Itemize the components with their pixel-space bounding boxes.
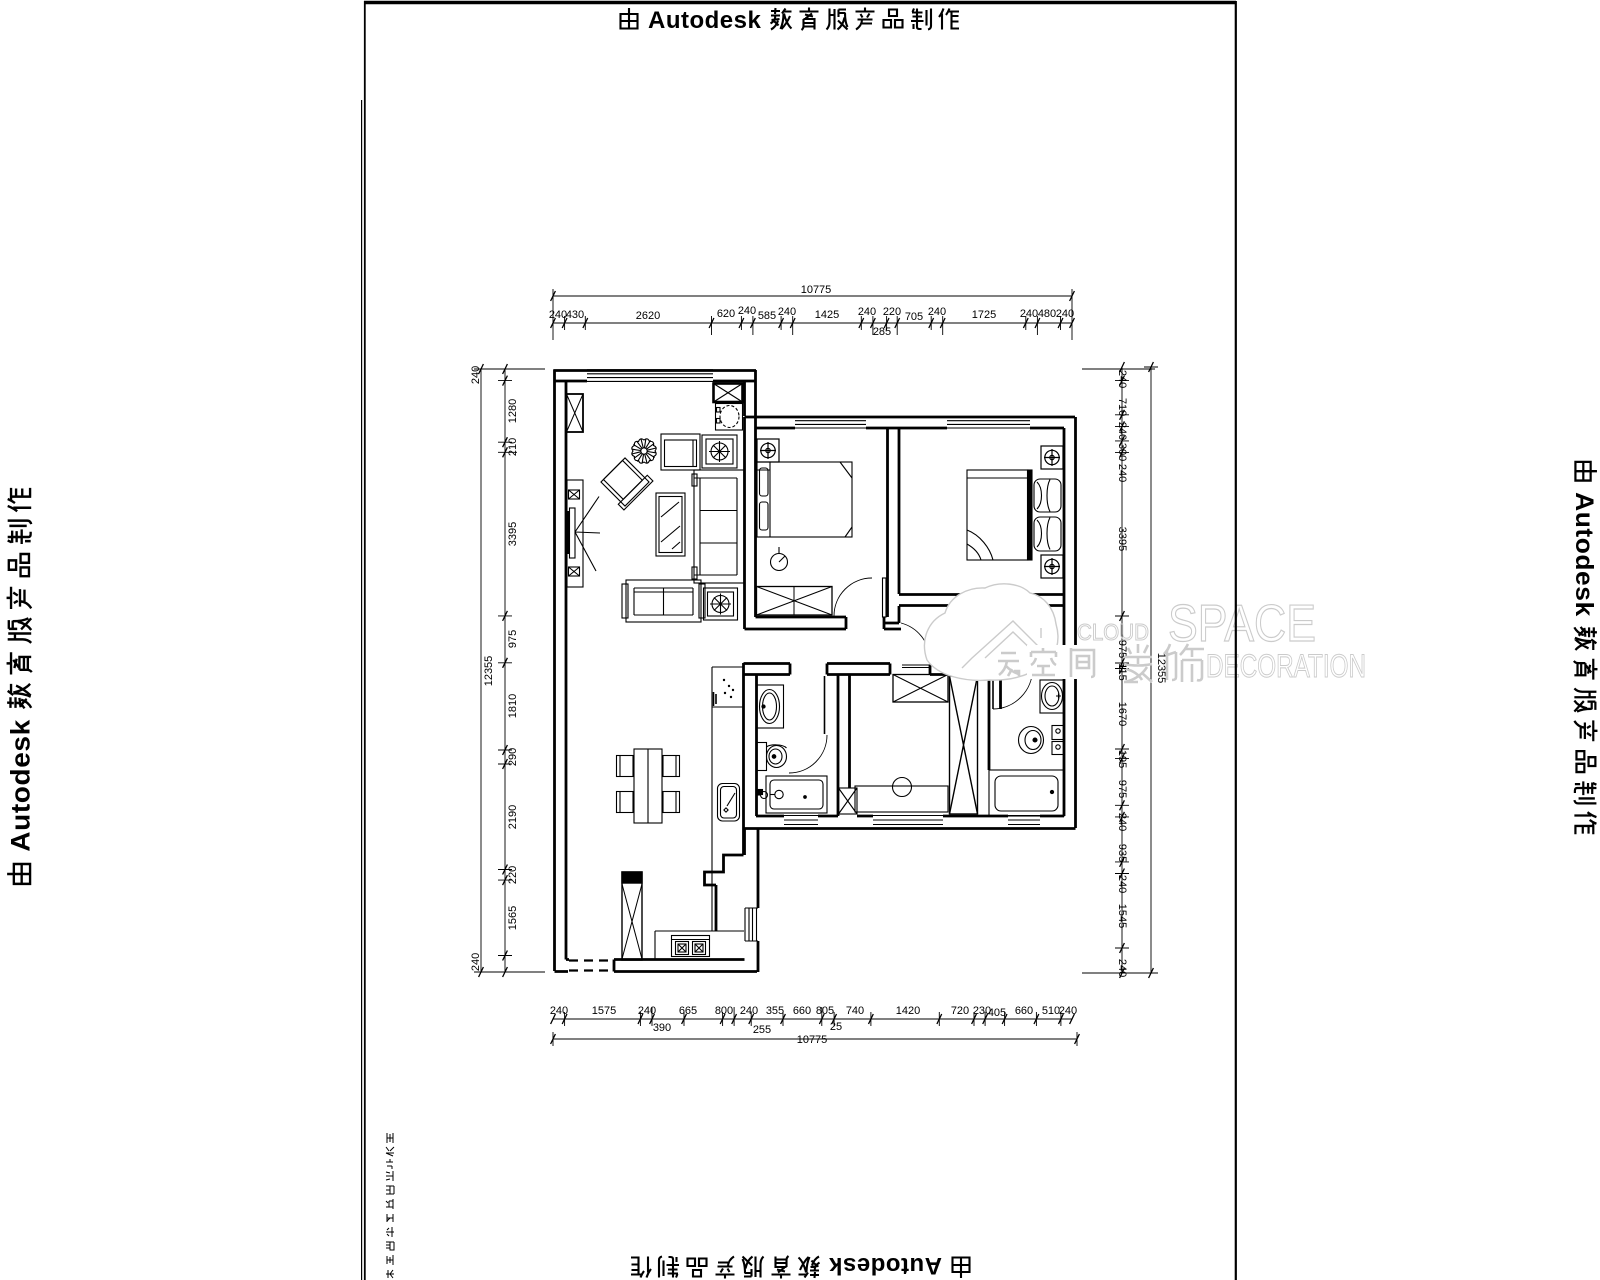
- svg-text:210: 210: [507, 438, 519, 456]
- svg-text:195: 195: [1116, 750, 1128, 768]
- svg-text:240: 240: [1116, 813, 1128, 831]
- svg-text:240: 240: [1059, 1005, 1077, 1017]
- svg-text:240: 240: [470, 366, 482, 384]
- svg-text:1420: 1420: [896, 1005, 920, 1017]
- svg-text:240: 240: [1116, 370, 1128, 388]
- svg-text:660: 660: [793, 1005, 811, 1017]
- svg-text:2620: 2620: [636, 310, 660, 322]
- svg-text:935: 935: [1116, 844, 1128, 862]
- svg-text:DECORATION: DECORATION: [1206, 648, 1366, 684]
- svg-text:975: 975: [1116, 780, 1128, 798]
- svg-text:480: 480: [1038, 308, 1056, 320]
- svg-text:240: 240: [928, 306, 946, 318]
- svg-text:3395: 3395: [507, 522, 519, 546]
- svg-text:2190: 2190: [507, 805, 519, 829]
- svg-text:1670: 1670: [1116, 702, 1128, 726]
- svg-text:1725: 1725: [972, 309, 996, 321]
- svg-text:660: 660: [1015, 1005, 1033, 1017]
- svg-text:240: 240: [1116, 875, 1128, 893]
- svg-text:240: 240: [1056, 308, 1074, 320]
- svg-text:240: 240: [638, 1005, 656, 1017]
- svg-text:10775: 10775: [801, 284, 832, 296]
- svg-text:710: 710: [1116, 398, 1128, 416]
- svg-text:805: 805: [816, 1005, 834, 1017]
- svg-text:3395: 3395: [1116, 527, 1128, 551]
- svg-text:285: 285: [873, 326, 891, 338]
- svg-text:220: 220: [883, 306, 901, 318]
- svg-text:1425: 1425: [815, 309, 839, 321]
- svg-text:CLOUD: CLOUD: [1077, 619, 1149, 645]
- svg-text:240: 240: [470, 953, 482, 971]
- svg-text:240: 240: [738, 305, 756, 317]
- svg-text:240: 240: [1116, 464, 1128, 482]
- svg-text:1575: 1575: [592, 1005, 616, 1017]
- svg-text:975: 975: [507, 630, 519, 648]
- svg-text:300: 300: [1116, 443, 1128, 461]
- svg-text:720: 720: [951, 1005, 969, 1017]
- svg-text:1545: 1545: [1116, 904, 1128, 928]
- svg-text:665: 665: [679, 1005, 697, 1017]
- svg-text:240: 240: [778, 306, 796, 318]
- svg-text:1565: 1565: [507, 906, 519, 930]
- svg-text:255: 255: [753, 1024, 771, 1036]
- svg-text:240: 240: [1116, 959, 1128, 977]
- svg-text:740: 740: [846, 1005, 864, 1017]
- svg-text:115: 115: [1116, 663, 1128, 681]
- svg-text:800: 800: [715, 1005, 733, 1017]
- svg-text:240: 240: [858, 306, 876, 318]
- svg-text:10775: 10775: [797, 1034, 828, 1046]
- svg-text:290: 290: [507, 748, 519, 766]
- svg-text:25: 25: [830, 1021, 842, 1033]
- svg-text:405: 405: [988, 1007, 1006, 1019]
- svg-text:585: 585: [758, 310, 776, 322]
- svg-text:355: 355: [766, 1005, 784, 1017]
- svg-text:240: 240: [1020, 308, 1038, 320]
- svg-text:12355: 12355: [483, 656, 495, 687]
- svg-text:1280: 1280: [507, 399, 519, 423]
- svg-text:430: 430: [566, 309, 584, 321]
- svg-text:240: 240: [1116, 422, 1128, 440]
- svg-text:1810: 1810: [507, 694, 519, 718]
- svg-text:240: 240: [549, 309, 567, 321]
- svg-text:240: 240: [740, 1005, 758, 1017]
- svg-text:620: 620: [717, 308, 735, 320]
- svg-text:SPACE: SPACE: [1168, 595, 1316, 653]
- svg-text:390: 390: [653, 1022, 671, 1034]
- svg-text:12355: 12355: [1155, 653, 1167, 684]
- svg-text:705: 705: [905, 311, 923, 323]
- svg-text:510: 510: [1042, 1005, 1060, 1017]
- svg-text:240: 240: [550, 1005, 568, 1017]
- svg-text:220: 220: [507, 866, 519, 884]
